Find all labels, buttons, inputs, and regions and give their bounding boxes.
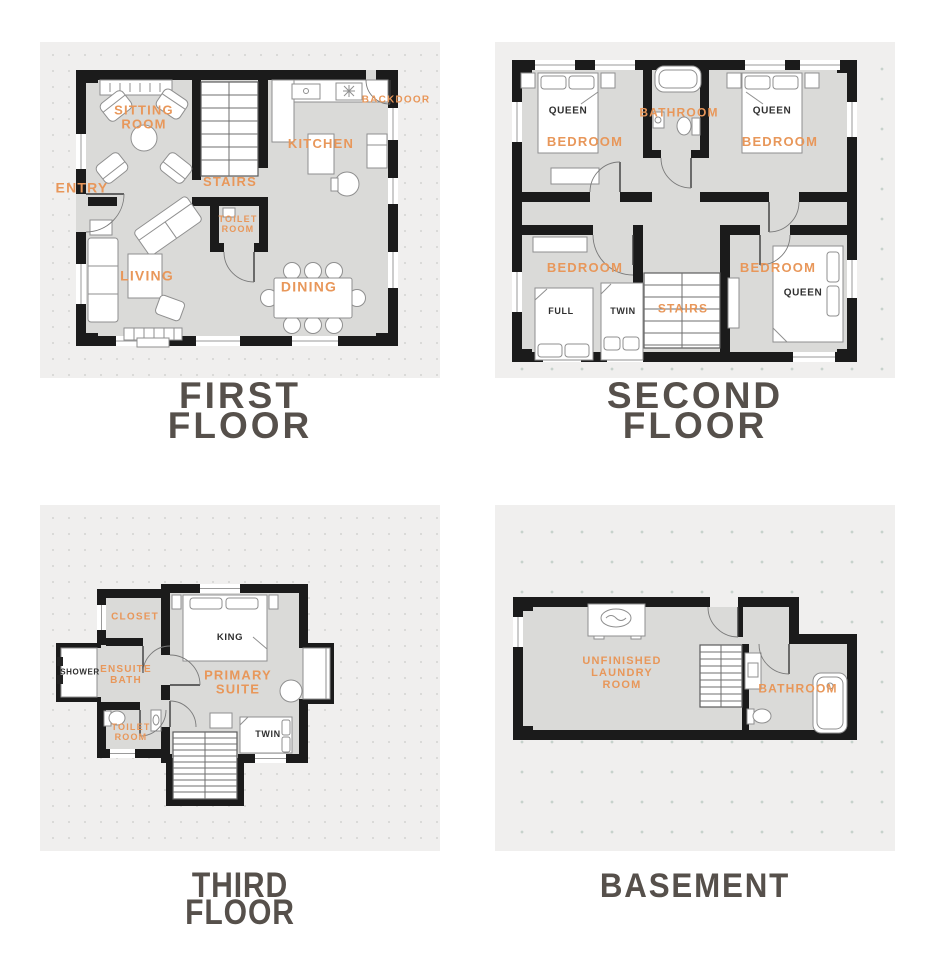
label-entry: ENTRY [56, 180, 109, 195]
washer-unit [588, 604, 645, 639]
bay-window-seat [303, 648, 330, 699]
third-floor-title: THIRD FLOOR [68, 872, 412, 926]
label-king: KING [217, 633, 243, 643]
label-toilet-room-3: TOILET ROOM [111, 723, 150, 743]
label-twin-3: TWIN [255, 730, 280, 740]
label-bedroom-bl: BEDROOM [547, 261, 623, 275]
label-living: LIVING [120, 268, 174, 283]
label-bathroom: BATHROOM [639, 106, 718, 119]
label-bedroom-br: BEDROOM [740, 261, 816, 275]
second-floor-title: SECOND FLOOR [495, 381, 895, 441]
second-floor-panel: BEDROOM BATHROOM BEDROOM BEDROOM BEDROOM… [495, 42, 895, 378]
label-laundry-room: UNFINISHED LAUNDRY ROOM [582, 655, 661, 691]
label-kitchen: KITCHEN [288, 137, 354, 151]
first-floor-title: FIRST FLOOR [40, 381, 440, 441]
third-floor-stairs [173, 732, 237, 799]
first-floor-stairs [201, 82, 258, 176]
label-bedroom-tr: BEDROOM [742, 135, 818, 149]
label-queen-br: QUEEN [784, 288, 823, 299]
basement-stairs [700, 645, 742, 707]
label-stairs-2: STAIRS [658, 302, 708, 315]
label-dining: DINING [281, 279, 337, 294]
label-bedroom-tl: BEDROOM [547, 135, 623, 149]
label-twin: TWIN [610, 307, 635, 317]
label-queen-tl: QUEEN [549, 106, 588, 117]
floor-plans-page: SITTING ROOM ENTRY STAIRS KITCHEN BACKDO… [0, 0, 925, 960]
label-stairs: STAIRS [203, 175, 257, 189]
label-sitting-room: SITTING ROOM [114, 104, 174, 133]
label-closet: CLOSET [111, 612, 159, 623]
first-floor-plan [40, 42, 440, 378]
label-primary-suite: PRIMARY SUITE [204, 669, 272, 698]
label-backdoor: BACKDOOR [362, 95, 431, 106]
second-floor-plan [495, 42, 895, 378]
label-shower: SHOWER [60, 669, 100, 678]
basement-panel: UNFINISHED LAUNDRY ROOM BATHROOM [495, 505, 895, 851]
label-full: FULL [548, 307, 573, 317]
third-floor-panel: CLOSET ENSUITE BATH PRIMARY SUITE TOILET… [40, 505, 440, 851]
basement-windows [513, 617, 523, 647]
first-floor-panel: SITTING ROOM ENTRY STAIRS KITCHEN BACKDO… [40, 42, 440, 378]
label-ensuite-bath: ENSUITE BATH [100, 664, 152, 686]
label-basement-bathroom: BATHROOM [758, 682, 837, 695]
label-toilet-room: TOILET ROOM [218, 215, 257, 235]
label-queen-tr: QUEEN [753, 106, 792, 117]
basement-plan [495, 505, 895, 851]
basement-title: BASEMENT [511, 872, 879, 900]
